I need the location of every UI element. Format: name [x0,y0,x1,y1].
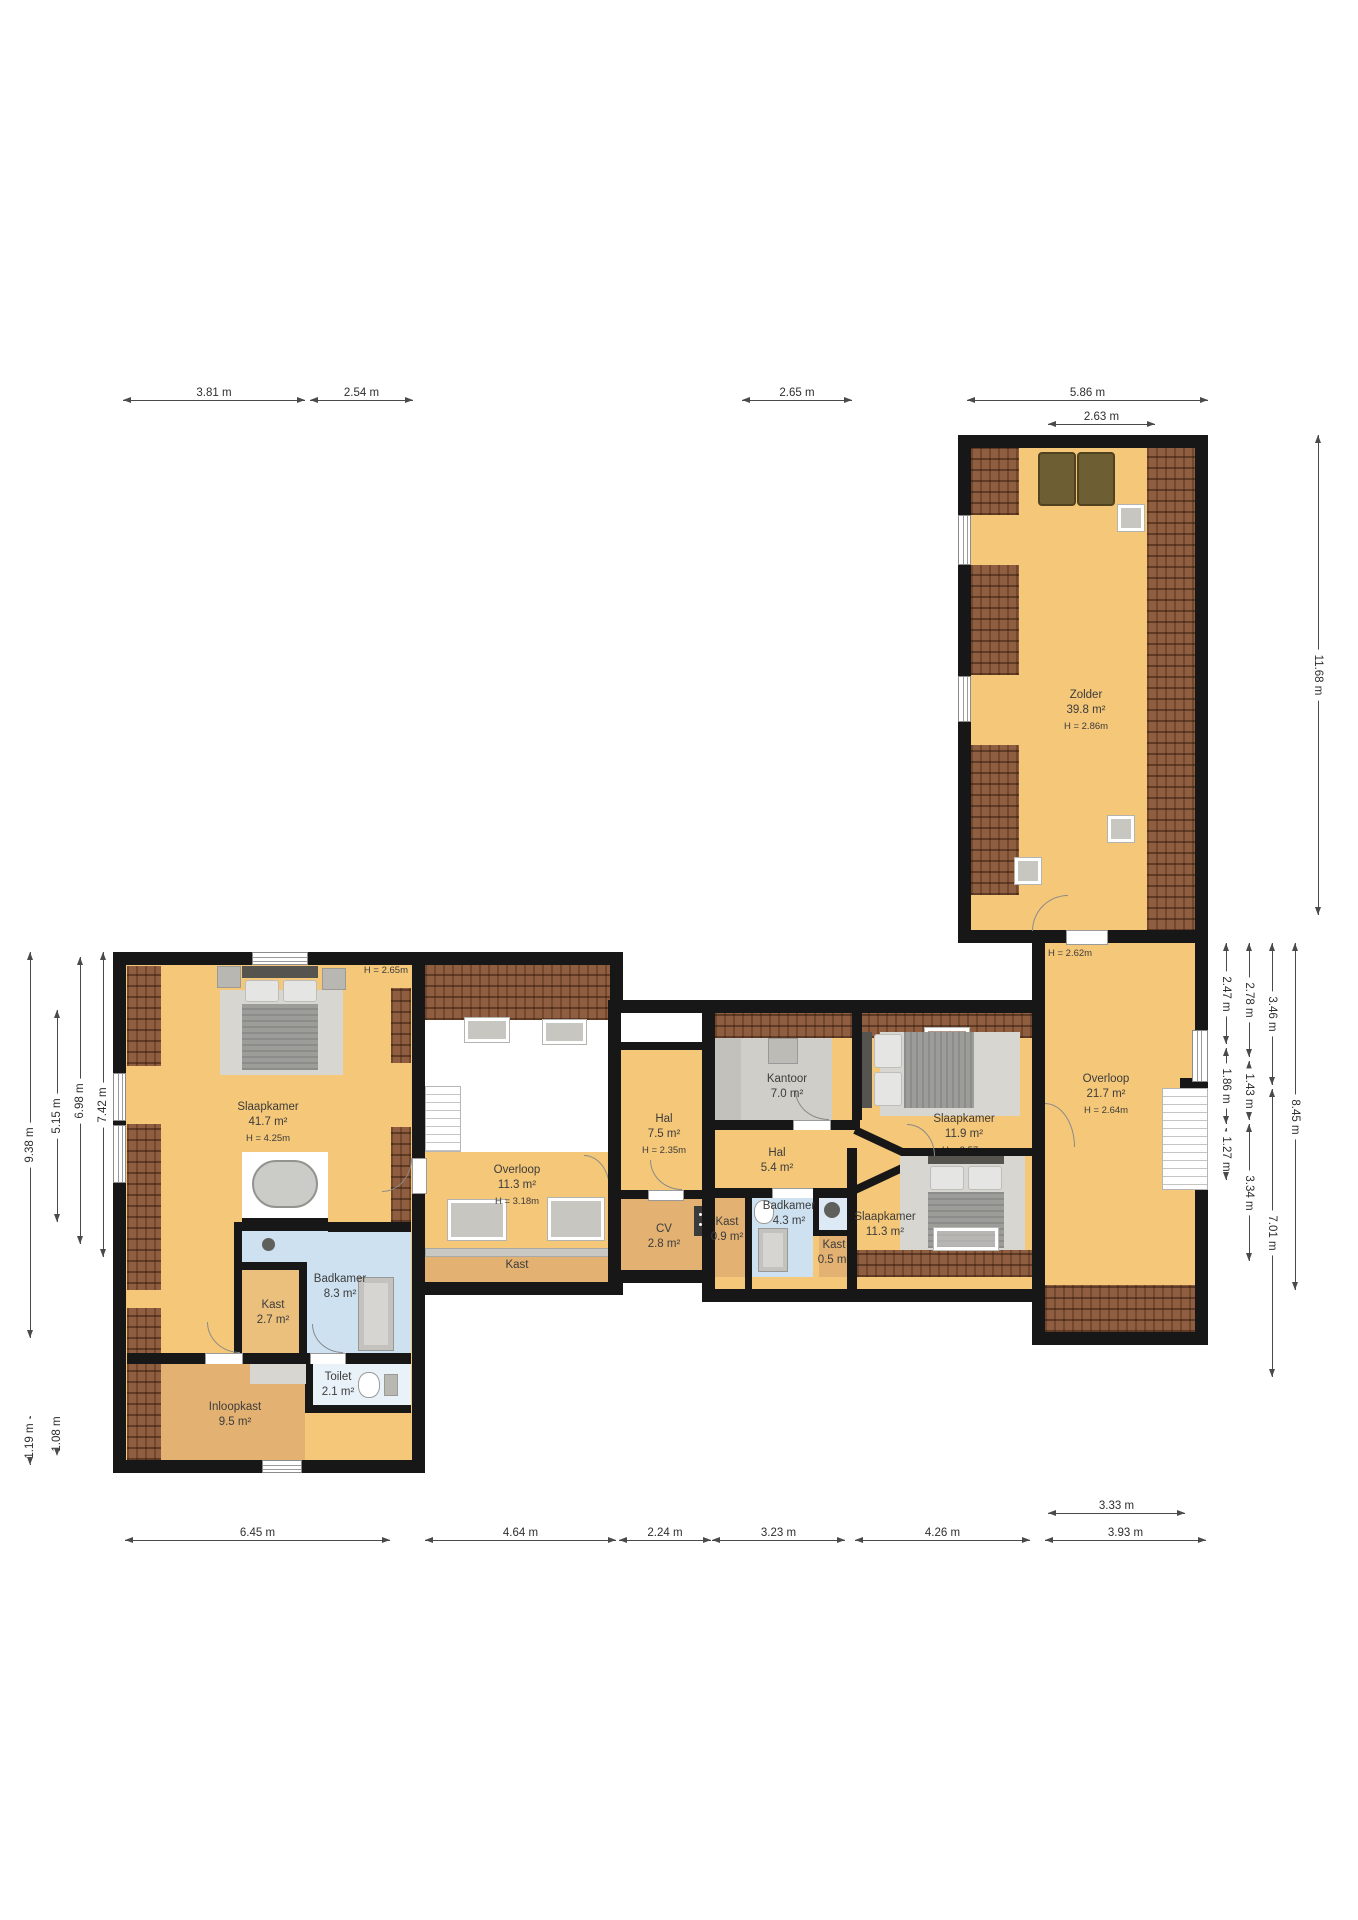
kantoor-desk [768,1038,798,1064]
room-label-zolder: Zolder 39.8 m² H = 2.86m [1026,688,1146,733]
overloop-right-roof-bottom [1045,1285,1195,1332]
room-label-inloopkast: Inloopkast 9.5 m² [175,1400,295,1430]
zolder-roof-right [1147,448,1195,1008]
room-label-kast-strip: Kast [487,1258,547,1273]
void-skylight-2 [543,1020,586,1044]
dimension-left-7: 1.08 m [57,1412,58,1456]
dimension-left-4: 7.42 m [103,952,104,1257]
dimension-right-10: 11.68 m [1318,435,1319,915]
dimension-bottom-7: 3.33 m [1048,1513,1185,1514]
dimension-right-5: 1.43 m [1249,1061,1250,1120]
bed119-pillow-2 [874,1072,902,1106]
zolder-window-left-2 [958,676,971,722]
staircase-middle [425,1086,461,1152]
bed-main-headboard [242,966,318,978]
dimension-left-6: 1.19 m [30,1416,31,1465]
zolder-door-gap [1066,930,1108,945]
bed-main-pillow-right [283,980,317,1002]
dimension-right-9: 8.45 m [1295,943,1296,1290]
dimension-left-1: 9.38 m [30,952,31,1338]
room-label-overloop-right: Overloop 21.7 m² H = 2.64m [1046,1072,1166,1117]
dimension-bottom-1: 6.45 m [125,1540,390,1541]
dimension-top-3: 2.65 m [742,400,852,401]
dimension-bottom-3: 2.24 m [619,1540,711,1541]
zolder-roof-left-2 [971,565,1019,675]
dimension-top-2: 2.54 m [310,400,413,401]
height-annotation-zolder-door: H = 2.62m [1048,948,1092,959]
dimension-right-3: 1.27 m [1226,1128,1227,1180]
middle-door-left-gap [412,1158,427,1194]
left-roof-gap-1 [127,1066,161,1124]
left-building-window-west-1 [113,1073,126,1121]
room-label-hal75: Hal 7.5 m² H = 2.35m [621,1112,707,1157]
room-label-slaapkamer-main: Slaapkamer 41.7 m² H = 4.25m [178,1100,358,1145]
dimension-right-7: 3.46 m [1272,943,1273,1085]
zolder-skylight-2 [1108,816,1134,842]
void-skylight-1 [465,1018,509,1042]
kast27-wall-top [242,1262,307,1270]
dimension-top-1: 3.81 m [123,400,305,401]
left-roof-gap-2 [127,1290,161,1308]
bed-main-pillow-left [245,980,279,1002]
dimension-left-2: 5.15 m [57,1010,58,1222]
dimension-top-4: 5.86 m [967,400,1208,401]
left-building-window-west-2 [113,1125,126,1183]
dimension-bottom-6: 3.93 m [1045,1540,1206,1541]
zolder-window-left-1 [958,515,971,565]
kantoor-wall-right [852,1013,862,1120]
nightstand-left [217,966,241,988]
inloopkast-mat [250,1364,306,1384]
left-roof-strip-right-gap [391,1063,411,1127]
room-label-overloop-mid: Overloop 11.3 m² H = 3.18m [457,1163,577,1208]
dimension-right-2: 1.86 m [1226,1048,1227,1124]
dimension-bottom-4: 3.23 m [712,1540,845,1541]
rooms-block-roof-bottom [857,1250,1032,1277]
kantoor-wall-bottom [715,1120,860,1130]
inloopkast-wall [127,1353,411,1364]
bed113-pillow-2 [968,1166,1002,1190]
overloop-right-window [1192,1030,1208,1082]
bed-main-duvet [242,1004,318,1070]
bed113-headboard [928,1156,1004,1164]
cv-door-gap [648,1190,684,1201]
bed119-duvet [904,1032,974,1108]
bed113-pillow-1 [930,1166,964,1190]
room-label-badkamer-main: Badkamer 8.3 m² [300,1272,380,1302]
dimension-right-8: 7.01 m [1272,1089,1273,1377]
dimension-right-1: 2.47 m [1226,943,1227,1044]
room-label-toilet: Toilet 2.1 m² [308,1370,368,1400]
left-building-window-bottom [262,1460,302,1473]
zolder-roof-left-3 [971,745,1019,895]
room-label-cv: CV 2.8 m² [624,1222,704,1252]
zolder-skylight-3 [1015,858,1041,884]
zolder-skylight-1 [1118,505,1144,531]
room-label-kantoor: Kantoor 7.0 m² [737,1072,837,1102]
dimension-left-3: 6.98 m [80,957,81,1244]
chair-1 [1038,452,1076,506]
shower-head-dot [262,1238,275,1251]
floorplan-canvas: 3.81 m 2.54 m 2.65 m 5.86 m 2.63 m 9.38 … [0,0,1358,1920]
badkamer-main-wall-top-right [328,1222,411,1232]
bathtub-wall [242,1218,328,1231]
toilet-wall-bottom [305,1405,411,1413]
bed119-headboard [862,1032,872,1108]
room-label-slaapkamer113: Slaapkamer 11.3 m² [825,1210,945,1240]
toilet-tank [384,1374,398,1396]
dimension-bottom-2: 4.64 m [425,1540,616,1541]
room-label-badkamer43: Badkamer 4.3 m² [749,1199,829,1229]
bathtub [252,1160,318,1208]
room-label-kast09: Kast 0.9 m² [707,1215,747,1245]
left-building-window-top [252,952,308,965]
middle-roof-band [425,965,610,1020]
left-roof-strip [127,966,161,1460]
room-label-kast27: Kast 2.7 m² [243,1298,303,1328]
dimension-bottom-5: 4.26 m [855,1540,1030,1541]
room-label-hal54: Hal 5.4 m² [732,1146,822,1176]
badkamer43-shower-inner [763,1233,783,1267]
dimension-right-4: 2.78 m [1249,943,1250,1057]
height-annotation-left-top: H = 2.65m [330,965,408,976]
dimension-top-5: 2.63 m [1048,424,1155,425]
bed119-pillow-1 [874,1034,902,1068]
hal75-wall-top [621,1042,707,1050]
staircase-right [1162,1088,1208,1190]
chair-2 [1077,452,1115,506]
dimension-right-6: 3.34 m [1249,1124,1250,1261]
zolder-roof-left-1 [971,448,1019,515]
kast-shelf [425,1248,610,1257]
